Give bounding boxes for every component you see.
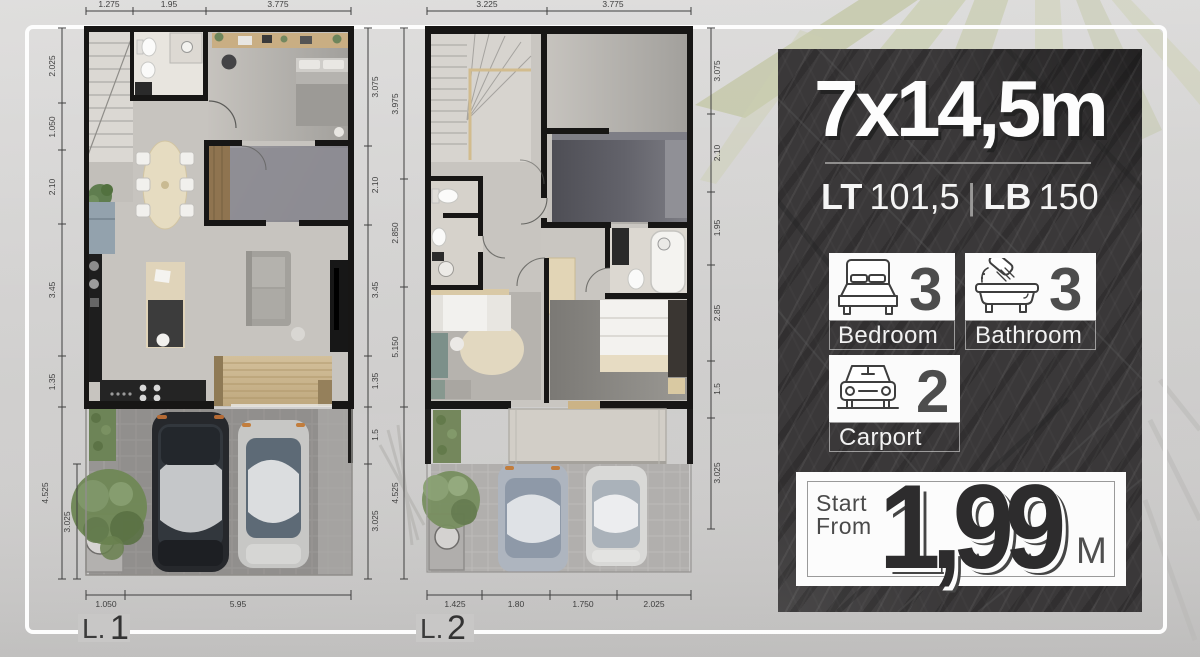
svg-text:2.025: 2.025: [47, 55, 57, 77]
svg-text:2.85: 2.85: [712, 304, 722, 321]
svg-text:2.10: 2.10: [47, 178, 57, 195]
svg-text:1: 1: [110, 609, 129, 647]
svg-text:2.10: 2.10: [370, 176, 380, 193]
svg-text:2.025: 2.025: [643, 599, 665, 609]
svg-text:3.025: 3.025: [370, 510, 380, 532]
svg-text:1.750: 1.750: [572, 599, 594, 609]
svg-text:1.425: 1.425: [444, 599, 466, 609]
svg-text:1.5: 1.5: [712, 383, 722, 395]
svg-text:3.45: 3.45: [47, 281, 57, 298]
svg-text:L.: L.: [82, 613, 105, 644]
svg-text:4.525: 4.525: [40, 482, 50, 504]
svg-text:3.45: 3.45: [370, 281, 380, 298]
svg-text:3.025: 3.025: [712, 462, 722, 484]
svg-text:L.: L.: [420, 613, 443, 644]
svg-text:5.150: 5.150: [390, 336, 400, 358]
svg-text:3.225: 3.225: [476, 0, 498, 9]
svg-text:1.95: 1.95: [161, 0, 178, 9]
svg-text:1.80: 1.80: [508, 599, 525, 609]
svg-text:1.95: 1.95: [712, 219, 722, 236]
svg-text:3.775: 3.775: [602, 0, 624, 9]
svg-text:1.35: 1.35: [370, 372, 380, 389]
svg-text:3.075: 3.075: [712, 60, 722, 82]
svg-text:3.075: 3.075: [370, 76, 380, 98]
svg-text:1.35: 1.35: [47, 373, 57, 390]
svg-text:2: 2: [447, 609, 466, 647]
svg-text:1.5: 1.5: [370, 429, 380, 441]
svg-text:2.850: 2.850: [390, 222, 400, 244]
svg-text:3.975: 3.975: [390, 93, 400, 115]
svg-text:1.275: 1.275: [98, 0, 120, 9]
svg-text:3.025: 3.025: [62, 511, 72, 533]
svg-text:5.95: 5.95: [230, 599, 247, 609]
svg-text:3.775: 3.775: [267, 0, 289, 9]
svg-text:4.525: 4.525: [390, 482, 400, 504]
svg-text:1.050: 1.050: [47, 116, 57, 138]
svg-text:2.10: 2.10: [712, 144, 722, 161]
svg-text:1.050: 1.050: [95, 599, 117, 609]
